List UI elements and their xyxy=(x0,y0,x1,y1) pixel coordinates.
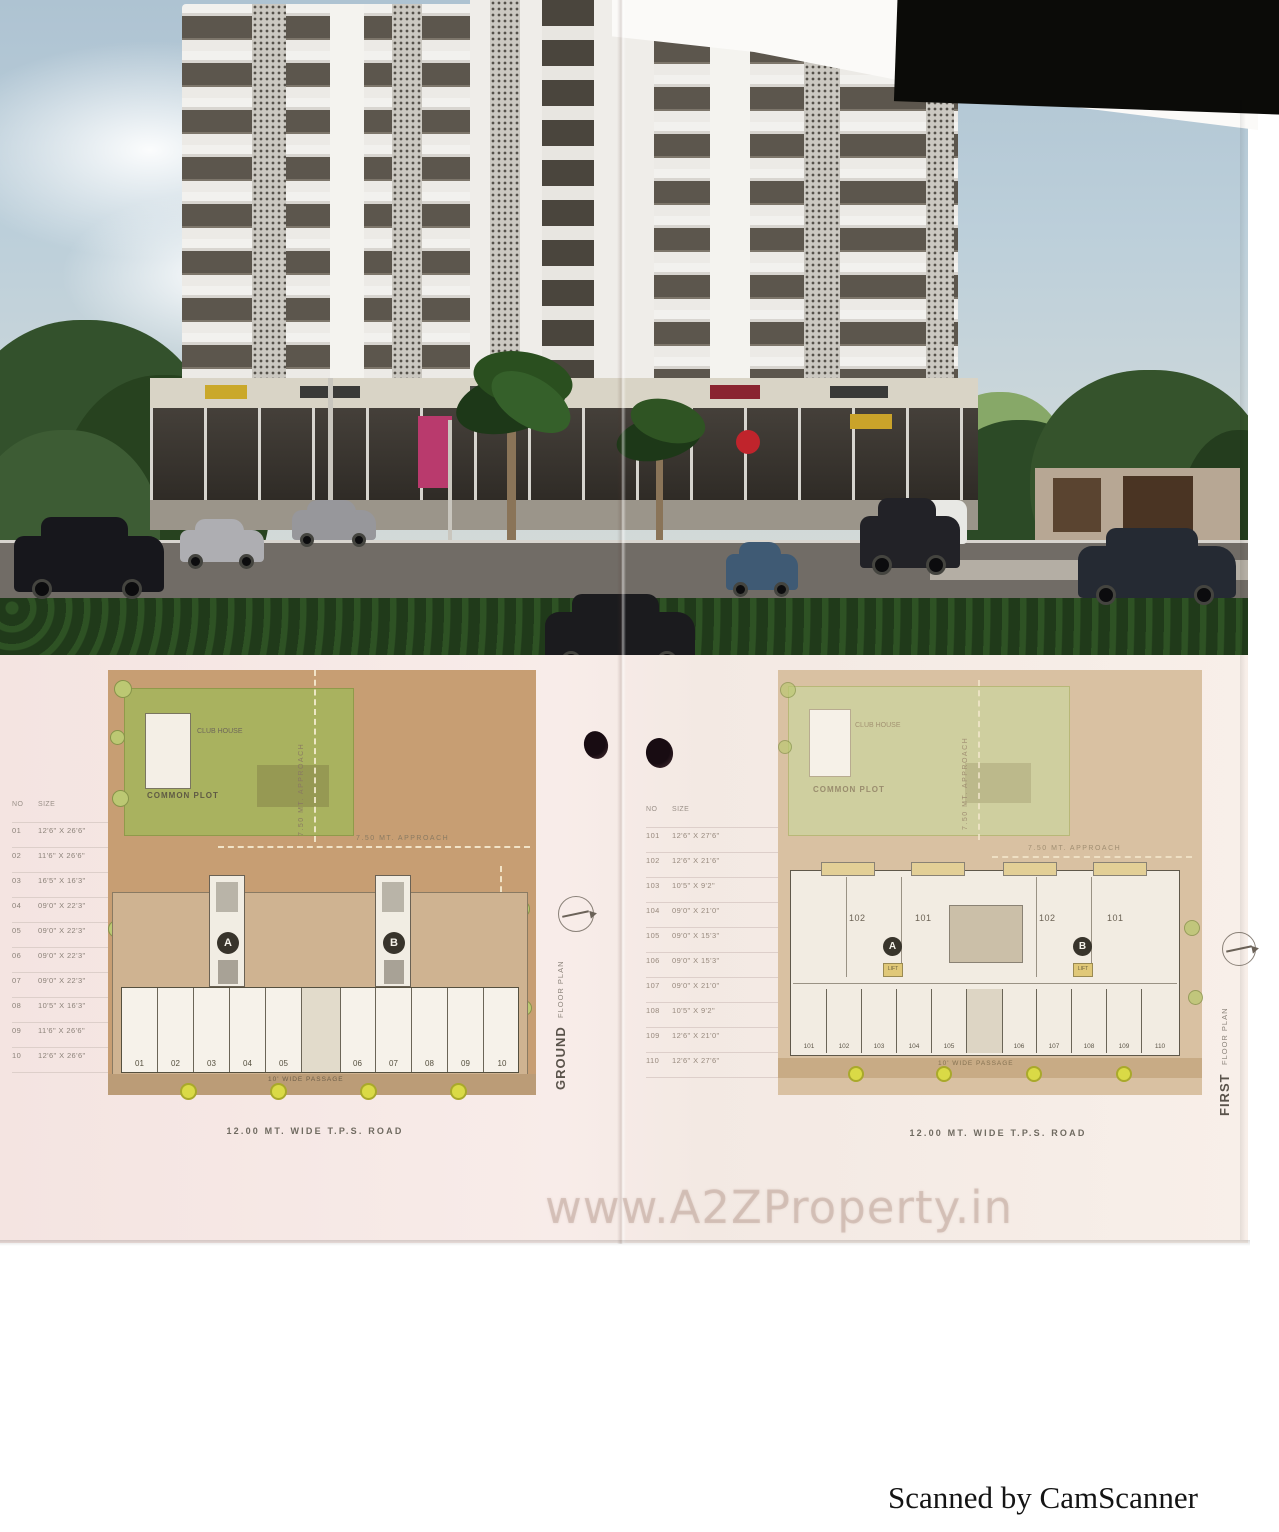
shop-unit: 03 xyxy=(194,988,230,1072)
wall-sign xyxy=(1053,478,1101,532)
shop-sign xyxy=(710,385,760,399)
apartment-block: 102 101 A LIFT 102 101 B LIFT 101 102 10… xyxy=(790,870,1180,1056)
unit-number: 102 xyxy=(849,913,866,923)
common-plot: CLUB HOUSE COMMON PLOT xyxy=(124,688,354,836)
wall-sign xyxy=(1123,476,1193,536)
table-row: 0810'5" X 16'3" xyxy=(12,998,114,1023)
shop-sign xyxy=(830,386,888,398)
approach-label-horizontal: 7.50 MT. APPROACH xyxy=(1028,845,1121,852)
shop-sign xyxy=(205,385,247,399)
table-row: 0709'0" X 22'3" xyxy=(12,973,114,998)
shop-row: 01 02 03 04 05 06 07 08 09 10 xyxy=(121,987,519,1073)
balcony-tab xyxy=(1093,862,1147,876)
shop-unit: 04 xyxy=(230,988,266,1072)
lift-box: LIFT xyxy=(883,963,903,977)
balcony-tab xyxy=(1003,862,1057,876)
passage-strip: 10' WIDE PASSAGE xyxy=(778,1058,1202,1078)
table-row: 0509'0" X 22'3" xyxy=(12,923,114,948)
car-black-suv-2 xyxy=(860,516,960,568)
bush xyxy=(780,682,796,698)
tower-b-badge: B xyxy=(1073,937,1092,956)
room-unit: 101 xyxy=(792,989,827,1053)
table-row: 10112'6" X 27'6" xyxy=(646,828,778,853)
stair-core xyxy=(302,988,341,1072)
north-compass-icon xyxy=(558,896,594,932)
unit-number: 102 xyxy=(1039,913,1056,923)
table-row: 1012'6" X 26'6" xyxy=(12,1048,114,1073)
club-house-label: CLUB HOUSE xyxy=(197,727,249,736)
yellow-bush xyxy=(1116,1066,1132,1082)
central-court xyxy=(949,905,1023,963)
storefront-pink xyxy=(418,416,452,488)
watermark: www.A2ZProperty.in xyxy=(545,1181,1013,1234)
balcony-tab xyxy=(821,862,875,876)
light-pole xyxy=(448,420,452,560)
yellow-bush xyxy=(936,1066,952,1082)
palm-tree xyxy=(455,352,575,567)
room-unit: 103 xyxy=(862,989,897,1053)
photo-background-corner xyxy=(894,0,1279,115)
table-row: 10912'6" X 21'0" xyxy=(646,1028,778,1053)
car-dark-sedan-right xyxy=(1078,546,1236,598)
page-right-edge xyxy=(1240,100,1246,1240)
passage-strip: 10' WIDE PASSAGE xyxy=(108,1074,536,1095)
passage-label: 10' WIDE PASSAGE xyxy=(268,1076,344,1083)
yellow-bush xyxy=(450,1083,467,1100)
plot-shade xyxy=(257,765,329,807)
club-house xyxy=(809,709,851,777)
table-row: 10509'0" X 15'3" xyxy=(646,928,778,953)
unit-number: 101 xyxy=(1107,913,1124,923)
tower-a-shaft: A xyxy=(209,875,245,987)
storefront-logo-red xyxy=(736,430,760,454)
shop-unit: 08 xyxy=(412,988,448,1072)
unit-number: 101 xyxy=(915,913,932,923)
bush xyxy=(778,740,792,754)
tower-b-shaft: B xyxy=(375,875,411,987)
room-unit: 107 xyxy=(1037,989,1072,1053)
window-column xyxy=(542,0,594,398)
first-road-label: 12.00 MT. WIDE T.P.S. ROAD xyxy=(888,1128,1108,1138)
table-row: 0911'6" X 26'6" xyxy=(12,1023,114,1048)
page-bottom-edge xyxy=(0,1240,1250,1246)
first-floor-plan: CLUB HOUSE COMMON PLOT 7.50 MT. APPROACH… xyxy=(778,670,1202,1095)
approach-road-line xyxy=(992,856,1192,858)
table-row: 10310'5" X 9'2" xyxy=(646,878,778,903)
yellow-bush xyxy=(1026,1066,1042,1082)
table-row: 11012'6" X 27'6" xyxy=(646,1053,778,1078)
building-center-block xyxy=(470,0,658,398)
building-left-tower xyxy=(182,4,474,428)
building-footprint: A B 01 02 03 04 05 06 07 08 09 10 xyxy=(112,892,528,1078)
table-row: 0409'0" X 22'3" xyxy=(12,898,114,923)
car-gray-coupe xyxy=(292,510,376,540)
scanner-credit: Scanned by CamScanner xyxy=(888,1480,1198,1516)
stair-core xyxy=(967,989,1003,1053)
car-black-suv xyxy=(14,536,164,592)
shop-unit: 01 xyxy=(122,988,158,1072)
table-row: 10810'5" X 9'2" xyxy=(646,1003,778,1028)
bush xyxy=(112,790,129,807)
table-row: 10409'0" X 21'0" xyxy=(646,903,778,928)
table-row: 10709'0" X 21'0" xyxy=(646,978,778,1003)
table-row: 0112'6" X 26'6" xyxy=(12,823,114,848)
storefront-sign-yellow xyxy=(850,414,892,429)
table-row: 0211'6" X 26'6" xyxy=(12,848,114,873)
yellow-bush xyxy=(270,1083,287,1100)
bush xyxy=(110,730,125,745)
room-unit: 109 xyxy=(1107,989,1142,1053)
room-unit: 106 xyxy=(1002,989,1037,1053)
scanned-brochure-page: NOSIZE 0112'6" X 26'6" 0211'6" X 26'6" 0… xyxy=(0,0,1279,1532)
shop-unit: 02 xyxy=(158,988,194,1072)
plot-shade xyxy=(965,763,1031,803)
common-plot-label: COMMON PLOT xyxy=(813,785,885,794)
yellow-bush xyxy=(848,1066,864,1082)
jali-screen xyxy=(490,0,520,398)
facade-pier xyxy=(330,4,364,428)
ground-plan-title: GROUND FLOOR PLAN xyxy=(552,938,570,1090)
approach-label-vertical: 7.50 MT. APPROACH xyxy=(962,700,969,830)
table-row: 0316'5" X 16'3" xyxy=(12,873,114,898)
shop-unit: 07 xyxy=(376,988,412,1072)
tower-a-badge: A xyxy=(217,932,239,954)
approach-road-line xyxy=(978,680,980,840)
tower-b-badge: B xyxy=(383,932,405,954)
room-row: 101 102 103 104 105 106 107 108 109 110 xyxy=(792,989,1178,1053)
room-unit: 102 xyxy=(827,989,862,1053)
common-plot: CLUB HOUSE COMMON PLOT xyxy=(788,686,1070,836)
table-row: 10212'6" X 21'6" xyxy=(646,853,778,878)
approach-label-horizontal: 7.50 MT. APPROACH xyxy=(356,835,449,842)
room-unit: 105 xyxy=(932,989,967,1053)
shop-unit: 05 xyxy=(266,988,302,1072)
jali-screen xyxy=(252,4,286,428)
bush xyxy=(114,680,132,698)
car-silver-sedan xyxy=(180,530,264,562)
car-blue-sedan xyxy=(726,554,798,590)
north-compass-icon xyxy=(1222,932,1256,966)
approach-label-vertical: 7.50 MT. APPROACH xyxy=(298,706,305,836)
shop-unit: 06 xyxy=(340,988,376,1072)
shop-unit: 09 xyxy=(448,988,484,1072)
bush xyxy=(1188,990,1203,1005)
shop-unit: 10 xyxy=(484,988,520,1072)
club-house xyxy=(145,713,191,789)
tower-a-badge: A xyxy=(883,937,902,956)
approach-road-line xyxy=(218,846,530,848)
table-header: NOSIZE xyxy=(12,798,114,823)
page-fold xyxy=(617,0,626,1244)
balcony-tab xyxy=(911,862,965,876)
first-size-table: NOSIZE 10112'6" X 27'6" 10212'6" X 21'6"… xyxy=(646,803,778,1078)
club-house-label: CLUB HOUSE xyxy=(855,721,905,730)
room-unit: 108 xyxy=(1072,989,1107,1053)
first-plan-title: FIRST FLOOR PLAN xyxy=(1216,976,1234,1116)
table-row: 0609'0" X 22'3" xyxy=(12,948,114,973)
bush xyxy=(1184,920,1200,936)
room-unit: 104 xyxy=(897,989,932,1053)
common-plot-label: COMMON PLOT xyxy=(147,791,219,800)
passage-label: 10' WIDE PASSAGE xyxy=(938,1060,1014,1067)
room-unit: 110 xyxy=(1142,989,1178,1053)
jali-screen xyxy=(392,4,422,428)
table-header: NOSIZE xyxy=(646,803,778,828)
ground-floor-plan: CLUB HOUSE COMMON PLOT 7.50 MT. APPROACH… xyxy=(108,670,536,1095)
yellow-bush xyxy=(360,1083,377,1100)
ground-road-label: 12.00 MT. WIDE T.P.S. ROAD xyxy=(205,1126,425,1136)
ground-size-table: NOSIZE 0112'6" X 26'6" 0211'6" X 26'6" 0… xyxy=(12,798,114,1073)
lift-box: LIFT xyxy=(1073,963,1093,977)
table-row: 10609'0" X 15'3" xyxy=(646,953,778,978)
approach-road-line xyxy=(314,670,316,842)
yellow-bush xyxy=(180,1083,197,1100)
